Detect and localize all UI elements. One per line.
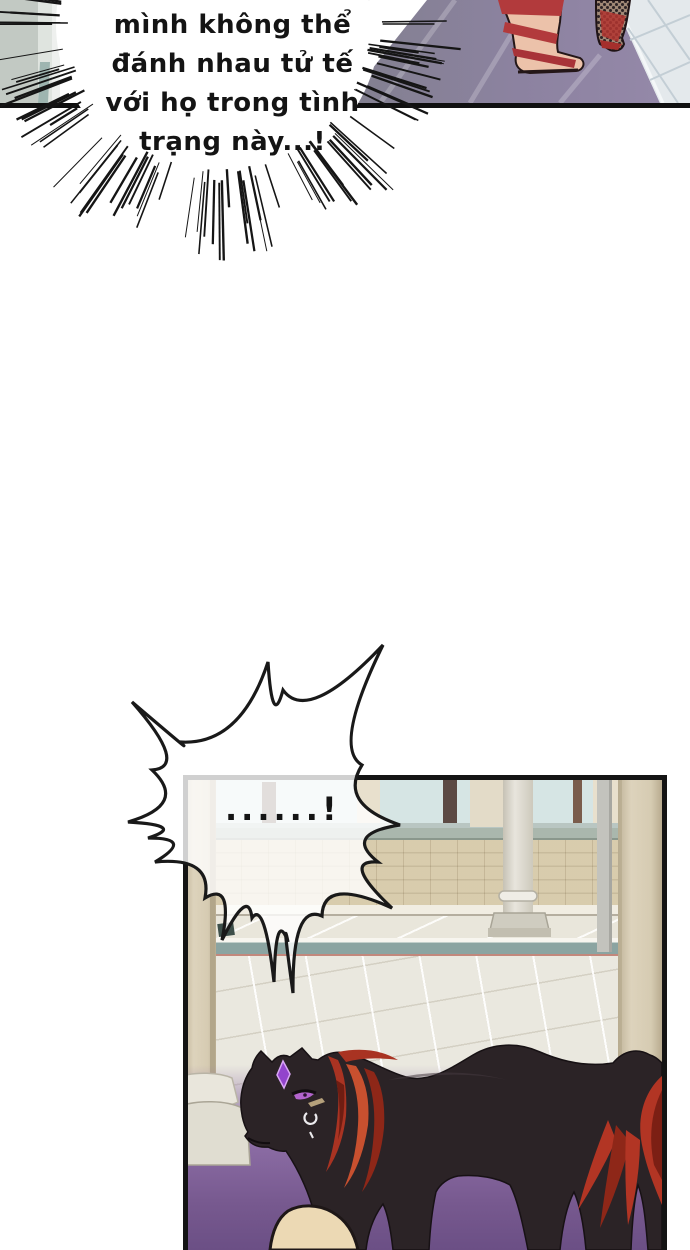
spike-speech-bubble: ......!: [105, 618, 415, 1013]
burst-text-line-3: với họ trong tình: [100, 84, 365, 123]
spike-bubble-text: ......!: [225, 790, 341, 828]
burst-text-line-1: mình không thể: [100, 6, 365, 45]
comic-page: mình không thể đánh nhau tử tế với họ tr…: [0, 0, 690, 1250]
burst-bubble-text: mình không thể đánh nhau tử tế với họ tr…: [100, 6, 365, 162]
wall-pier: [470, 780, 506, 827]
burst-text-line-2: đánh nhau tử tế: [100, 45, 365, 84]
burst-text-line-4: trạng này...!: [100, 123, 365, 162]
